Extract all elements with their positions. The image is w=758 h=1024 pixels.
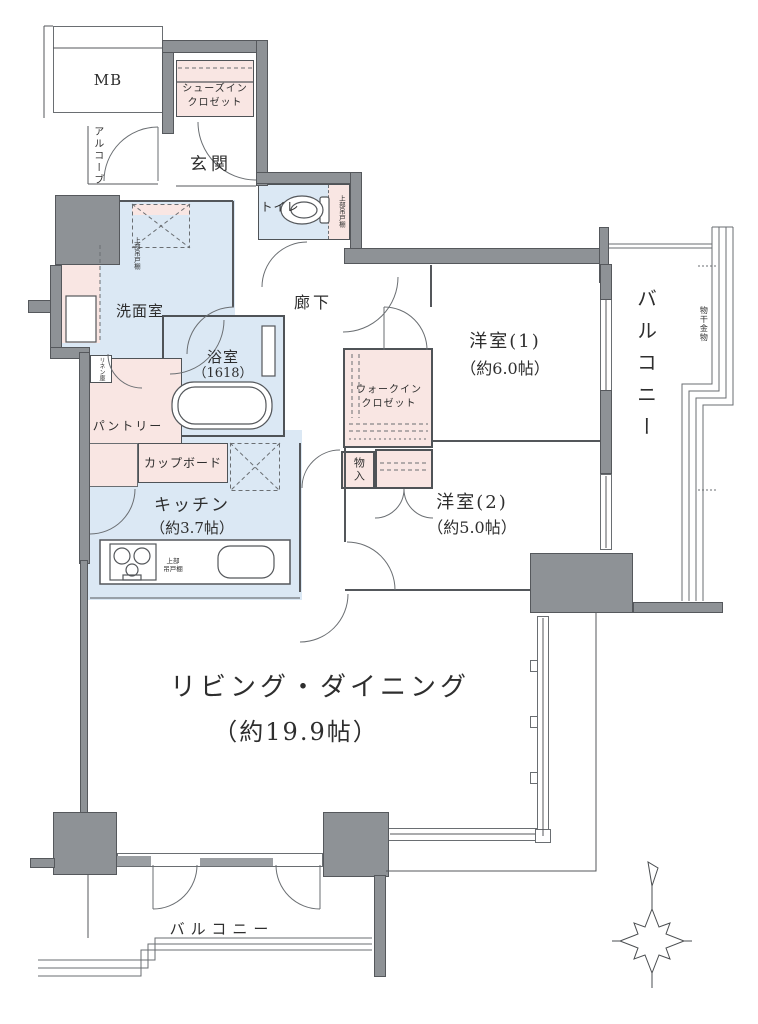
balcony-divider — [374, 875, 386, 977]
shoes-closet-label: シューズイン クロゼット — [182, 83, 248, 110]
laundry-hardware-label: 物干金物 — [698, 306, 709, 342]
mb-label: MB — [94, 70, 122, 90]
bedroom2-window — [600, 474, 612, 550]
pillar — [530, 553, 633, 613]
alcove-label: アルコーブ — [90, 126, 104, 186]
toilet-label: トイレ — [260, 199, 299, 215]
walk-in-closet-label: ウォークイン クロゼット — [356, 384, 422, 411]
wall-bedroom1-top — [344, 248, 604, 264]
storage-label: 物入 — [351, 457, 366, 483]
wall — [30, 858, 55, 868]
wall — [256, 172, 362, 184]
window-sash-tab — [530, 772, 538, 784]
wall — [600, 390, 612, 474]
south-window-sill — [200, 858, 273, 866]
wall — [256, 40, 268, 186]
cupboard-label: カップボード — [144, 455, 222, 471]
balcony-south-label: バルコニー — [170, 919, 275, 939]
bedroom1-size-label: （約6.0帖） — [460, 358, 549, 380]
floor-plan: MB アルコーブ シューズイン クロゼット 玄関 トイレ 上部吊戸棚 廊下 洗面… — [0, 0, 758, 1024]
toilet-shelf-label: 上部吊戸棚 — [337, 195, 346, 228]
wall — [162, 40, 268, 53]
kitchen-size-label: （約3.7帖） — [150, 518, 234, 538]
bedroom1-window — [600, 298, 612, 392]
room-pantry-lower — [88, 443, 138, 487]
washroom-shelf-label: 上部吊戸棚 — [132, 237, 141, 270]
washer-shelf-strip — [132, 204, 190, 215]
bedroom1-label: 洋室(1) — [469, 330, 541, 354]
pillar — [55, 195, 120, 265]
bedroom2-label: 洋室(2) — [436, 491, 508, 515]
wall — [80, 560, 88, 816]
linen-label: リネン庫 — [97, 357, 105, 381]
wall — [162, 40, 174, 134]
balcony-east-label: バルコニー — [632, 288, 659, 448]
balcony-end-wall — [633, 602, 723, 613]
wall — [50, 265, 62, 359]
living-southeast-window — [388, 828, 537, 841]
living-dining-label: リビング・ダイニング — [170, 670, 470, 705]
wall — [600, 264, 612, 300]
washroom-label: 洗面室 — [116, 301, 164, 321]
bathroom-size-label: （1618） — [193, 365, 252, 383]
compass-north-icon — [612, 862, 692, 988]
wall — [79, 352, 90, 564]
pantry-label: パントリー — [93, 418, 164, 434]
corridor-label: 廊下 — [294, 292, 332, 314]
pillar — [53, 812, 117, 875]
bathroom-label: 浴室 — [207, 347, 239, 367]
kitchen-shelf-label: 上部 吊戸棚 — [163, 558, 183, 574]
bedroom2-size-label: （約5.0帖） — [427, 517, 516, 539]
kitchen-label: キッチン — [154, 495, 230, 518]
entrance-label: 玄関 — [190, 154, 232, 177]
window-sash-tab — [530, 716, 538, 728]
south-window-sill — [117, 856, 151, 866]
living-east-window — [537, 616, 549, 838]
window-sash-tab — [530, 660, 538, 672]
pillar — [323, 812, 389, 877]
window-corner-block — [535, 829, 551, 843]
bedroom2-closet — [375, 449, 433, 489]
living-dining-size-label: （約19.9帖） — [213, 716, 378, 748]
